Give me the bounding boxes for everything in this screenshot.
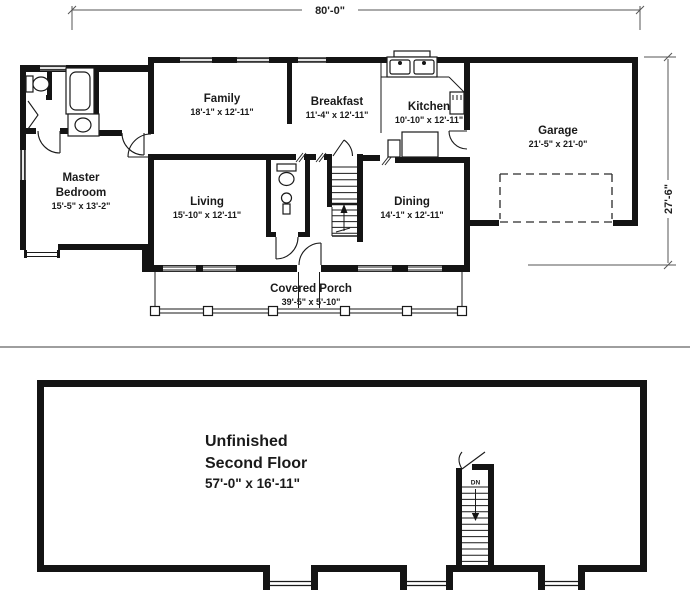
- master-bedroom-label-line2: Bedroom: [56, 187, 106, 199]
- second-floor-label-line2: Second Floor: [205, 455, 307, 472]
- family-room-label: Family: [204, 93, 241, 105]
- garage-size: 21'-5" x 21'-0": [529, 139, 588, 149]
- kitchen-window-box: [394, 51, 430, 57]
- second-floor-plan: DN Unfinished Second Floor 57'-0" x 16'-…: [37, 380, 647, 590]
- depth-dimension-label: 27'-6": [663, 184, 675, 214]
- second-floor-labels: Unfinished Second Floor 57'-0" x 16'-11": [205, 433, 307, 491]
- porch-posts: [151, 307, 467, 316]
- master-bedroom-door: [128, 134, 151, 157]
- garage-door-interior: [449, 131, 467, 149]
- second-floor-walls: [37, 380, 647, 590]
- toilet-icon: [26, 76, 49, 92]
- vanity-sink-icon: [68, 114, 99, 136]
- master-bath-fixtures: [26, 68, 99, 136]
- covered-porch-size: 39'-5" x 5'-10": [282, 297, 341, 307]
- kitchen-island-icon: [388, 132, 438, 157]
- powder-toilet-icon: [277, 164, 296, 186]
- dining-room-size: 14'-1" x 12'-11": [380, 210, 443, 220]
- master-bath-door: [38, 131, 60, 153]
- range-icon: [450, 92, 464, 114]
- powder-sink-icon: [282, 193, 292, 214]
- second-floor-label-line1: Unfinished: [205, 433, 288, 450]
- floor-plan-svg: 80'-0" 27'-6": [0, 0, 690, 590]
- stair-down-arrow: [472, 489, 479, 521]
- covered-porch-label: Covered Porch: [270, 283, 352, 295]
- breakfast-room-size: 11'-4" x 12'-11": [306, 110, 369, 120]
- width-dimension-label: 80'-0": [315, 5, 345, 17]
- powder-room-door: [276, 237, 298, 259]
- bathtub-icon: [66, 68, 94, 114]
- toilet-room-bifold-door: [28, 101, 38, 129]
- floor-plan-image: 80'-0" 27'-6": [0, 0, 690, 590]
- first-floor-walls: [20, 57, 638, 272]
- bay-window: [24, 250, 60, 258]
- front-door: [299, 243, 321, 265]
- family-room-size: 18'-1" x 12'-11": [190, 107, 253, 117]
- dining-room-label: Dining: [394, 196, 430, 208]
- master-bedroom-label-line1: Master: [62, 172, 100, 184]
- stairs-first-floor: [332, 167, 357, 236]
- first-floor-plan: 80'-0" 27'-6": [20, 5, 676, 316]
- kitchen-room-label: Kitchen: [408, 101, 450, 113]
- second-floor-size: 57'-0" x 16'-11": [205, 476, 300, 491]
- living-room-size: 15'-10" x 12'-11": [173, 210, 241, 220]
- breakfast-room-label: Breakfast: [311, 96, 364, 108]
- stairs-second-floor: DN: [456, 452, 494, 565]
- living-room-label: Living: [190, 196, 224, 208]
- stair-top-door: [333, 140, 353, 156]
- dimension-depth: 27'-6": [528, 53, 676, 269]
- master-bedroom-size: 15'-5" x 13'-2": [52, 201, 111, 211]
- garage-door-dashed: [500, 174, 612, 222]
- powder-room-fixtures: [277, 164, 296, 214]
- dimension-width: 80'-0": [68, 5, 644, 30]
- garage-label: Garage: [538, 125, 578, 137]
- kitchen-sink-icon: [387, 57, 437, 77]
- kitchen-room-size: 10'-10" x 12'-11": [395, 115, 463, 125]
- stairs-dn-label: DN: [471, 480, 481, 487]
